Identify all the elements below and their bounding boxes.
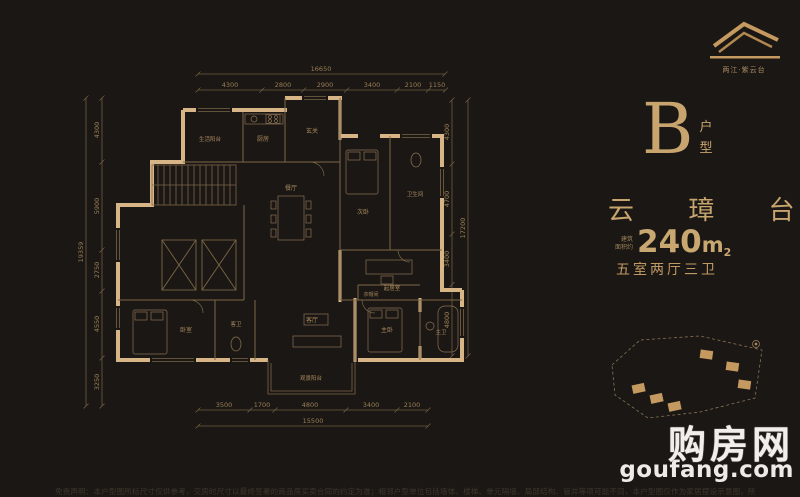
dim-top-seg: 4300 <box>222 81 239 89</box>
site-minimap <box>612 336 762 418</box>
dim-top-seg: 2800 <box>275 81 292 89</box>
dim-bottom-seg: 4800 <box>302 401 319 409</box>
room-label: 餐厅 <box>285 184 297 192</box>
dim-bottom-seg: 3500 <box>216 401 233 409</box>
dim-left-seg: 5900 <box>93 198 101 215</box>
site-buildings <box>631 349 751 412</box>
layout-summary: 五室两厅三卫 <box>616 259 718 279</box>
dim-top-total: 16650 <box>311 65 332 73</box>
dim-left-seg: 4550 <box>93 316 101 333</box>
logo-spacer <box>698 18 790 62</box>
unit-type-label: 户 型 <box>699 118 712 160</box>
brand-logo: 两江·紫云台 <box>698 18 790 75</box>
room-label: 生活阳台 <box>199 135 222 143</box>
dim-bottom-seg: 3400 <box>363 401 380 409</box>
room-label: 起居室 <box>384 284 401 292</box>
dim-bottom-seg: 1700 <box>254 401 271 409</box>
area-prefix-line: 面积约 <box>615 244 633 252</box>
disclaimer-text: 免责声明：本户型图所标尺寸仅供参考，交房时尺寸以最终签署的商品房买卖合同的约定为… <box>55 486 755 497</box>
dim-right-seg: 4700 <box>443 191 451 208</box>
dim-left-total: 19359 <box>77 242 85 263</box>
unit-type-block: B 户 型 <box>642 96 712 163</box>
staircase <box>152 165 236 205</box>
room-label: 客厅 <box>306 316 318 324</box>
dim-left-seg: 2750 <box>93 262 101 279</box>
room-label: 主卫 <box>435 328 447 336</box>
unit-letter: B <box>642 96 693 163</box>
unit-type-char: 户 <box>699 118 712 139</box>
dim-right-total: 17200 <box>459 218 467 239</box>
outer-walls <box>116 96 462 362</box>
room-label: 主卧 <box>381 326 393 334</box>
room-label: 卫生间 <box>407 190 424 198</box>
dim-right-seg: 4300 <box>443 124 451 141</box>
area-superscript: 2 <box>724 247 732 258</box>
dim-bottom-total: 15500 <box>303 417 324 425</box>
floorplan-page: 16650 4300 2800 2900 3400 2100 1150 4300… <box>0 0 800 497</box>
dim-top-seg: 1150 <box>429 81 446 89</box>
room-label: 卧室 <box>180 326 192 334</box>
dim-left-seg: 4300 <box>93 122 101 139</box>
elevator-shafts <box>162 240 236 290</box>
logo-name: 两江·紫云台 <box>698 65 790 75</box>
dim-top-seg: 2100 <box>405 81 422 89</box>
room-label: 观景阳台 <box>300 374 323 382</box>
watermark-domain: goufang.com <box>619 460 794 481</box>
windows <box>117 97 464 395</box>
room-label: 次卧 <box>357 208 369 216</box>
room-label: 玄关 <box>306 127 318 135</box>
dim-top-seg: 2900 <box>317 81 334 89</box>
dim-top-seg: 3400 <box>364 81 381 89</box>
area-prefix: 建筑 面积约 <box>615 236 633 252</box>
dim-right-seg: 4800 <box>443 312 451 329</box>
area-unit: m <box>702 232 724 258</box>
dim-bottom-seg: 2100 <box>404 401 421 409</box>
dimension-labels: 16650 4300 2800 2900 3400 2100 1150 4300… <box>77 65 467 425</box>
dim-left-seg: 3250 <box>93 374 101 391</box>
site-marker-icon <box>753 341 760 348</box>
project-name: 云 璋 台 <box>608 190 800 227</box>
site-boundary <box>612 336 762 418</box>
area-value: 240 <box>637 227 702 258</box>
unit-type-char: 型 <box>699 139 712 160</box>
watermark: 购房网 goufang.com <box>619 428 794 481</box>
room-label: 衣帽间 <box>363 291 378 298</box>
room-label: 厨房 <box>257 135 269 143</box>
room-label: 客卫 <box>230 320 242 328</box>
dim-right-seg: 3400 <box>443 251 451 268</box>
area-row: 建筑 面积约 240 m 2 <box>615 227 731 258</box>
